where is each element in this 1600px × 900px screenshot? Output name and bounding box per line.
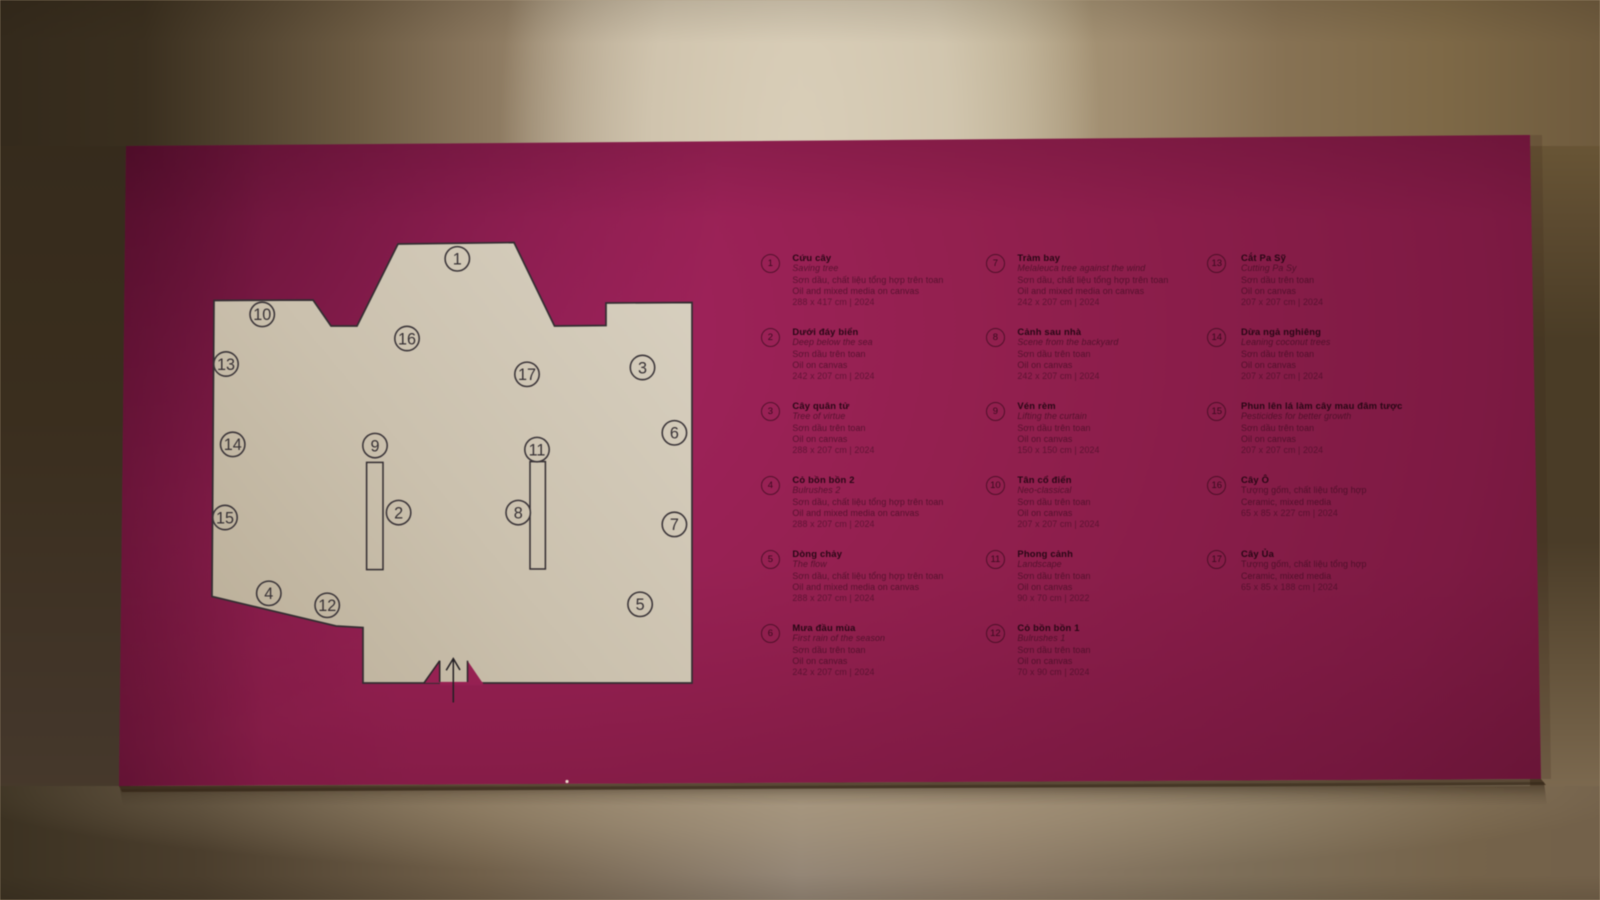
svg-text:15: 15 bbox=[216, 509, 234, 527]
svg-text:1: 1 bbox=[453, 251, 462, 269]
svg-text:8: 8 bbox=[514, 504, 523, 522]
svg-text:7: 7 bbox=[670, 516, 679, 534]
svg-text:10: 10 bbox=[253, 306, 271, 324]
svg-text:13: 13 bbox=[217, 356, 235, 374]
svg-text:6: 6 bbox=[670, 425, 679, 443]
svg-text:12: 12 bbox=[318, 597, 336, 615]
svg-text:9: 9 bbox=[370, 437, 379, 455]
svg-text:17: 17 bbox=[518, 366, 536, 384]
svg-text:2: 2 bbox=[394, 504, 403, 522]
svg-text:14: 14 bbox=[224, 436, 242, 454]
svg-text:3: 3 bbox=[638, 359, 647, 377]
svg-text:5: 5 bbox=[636, 596, 645, 614]
svg-text:4: 4 bbox=[264, 585, 273, 603]
svg-text:16: 16 bbox=[398, 330, 416, 348]
svg-text:11: 11 bbox=[529, 441, 546, 459]
